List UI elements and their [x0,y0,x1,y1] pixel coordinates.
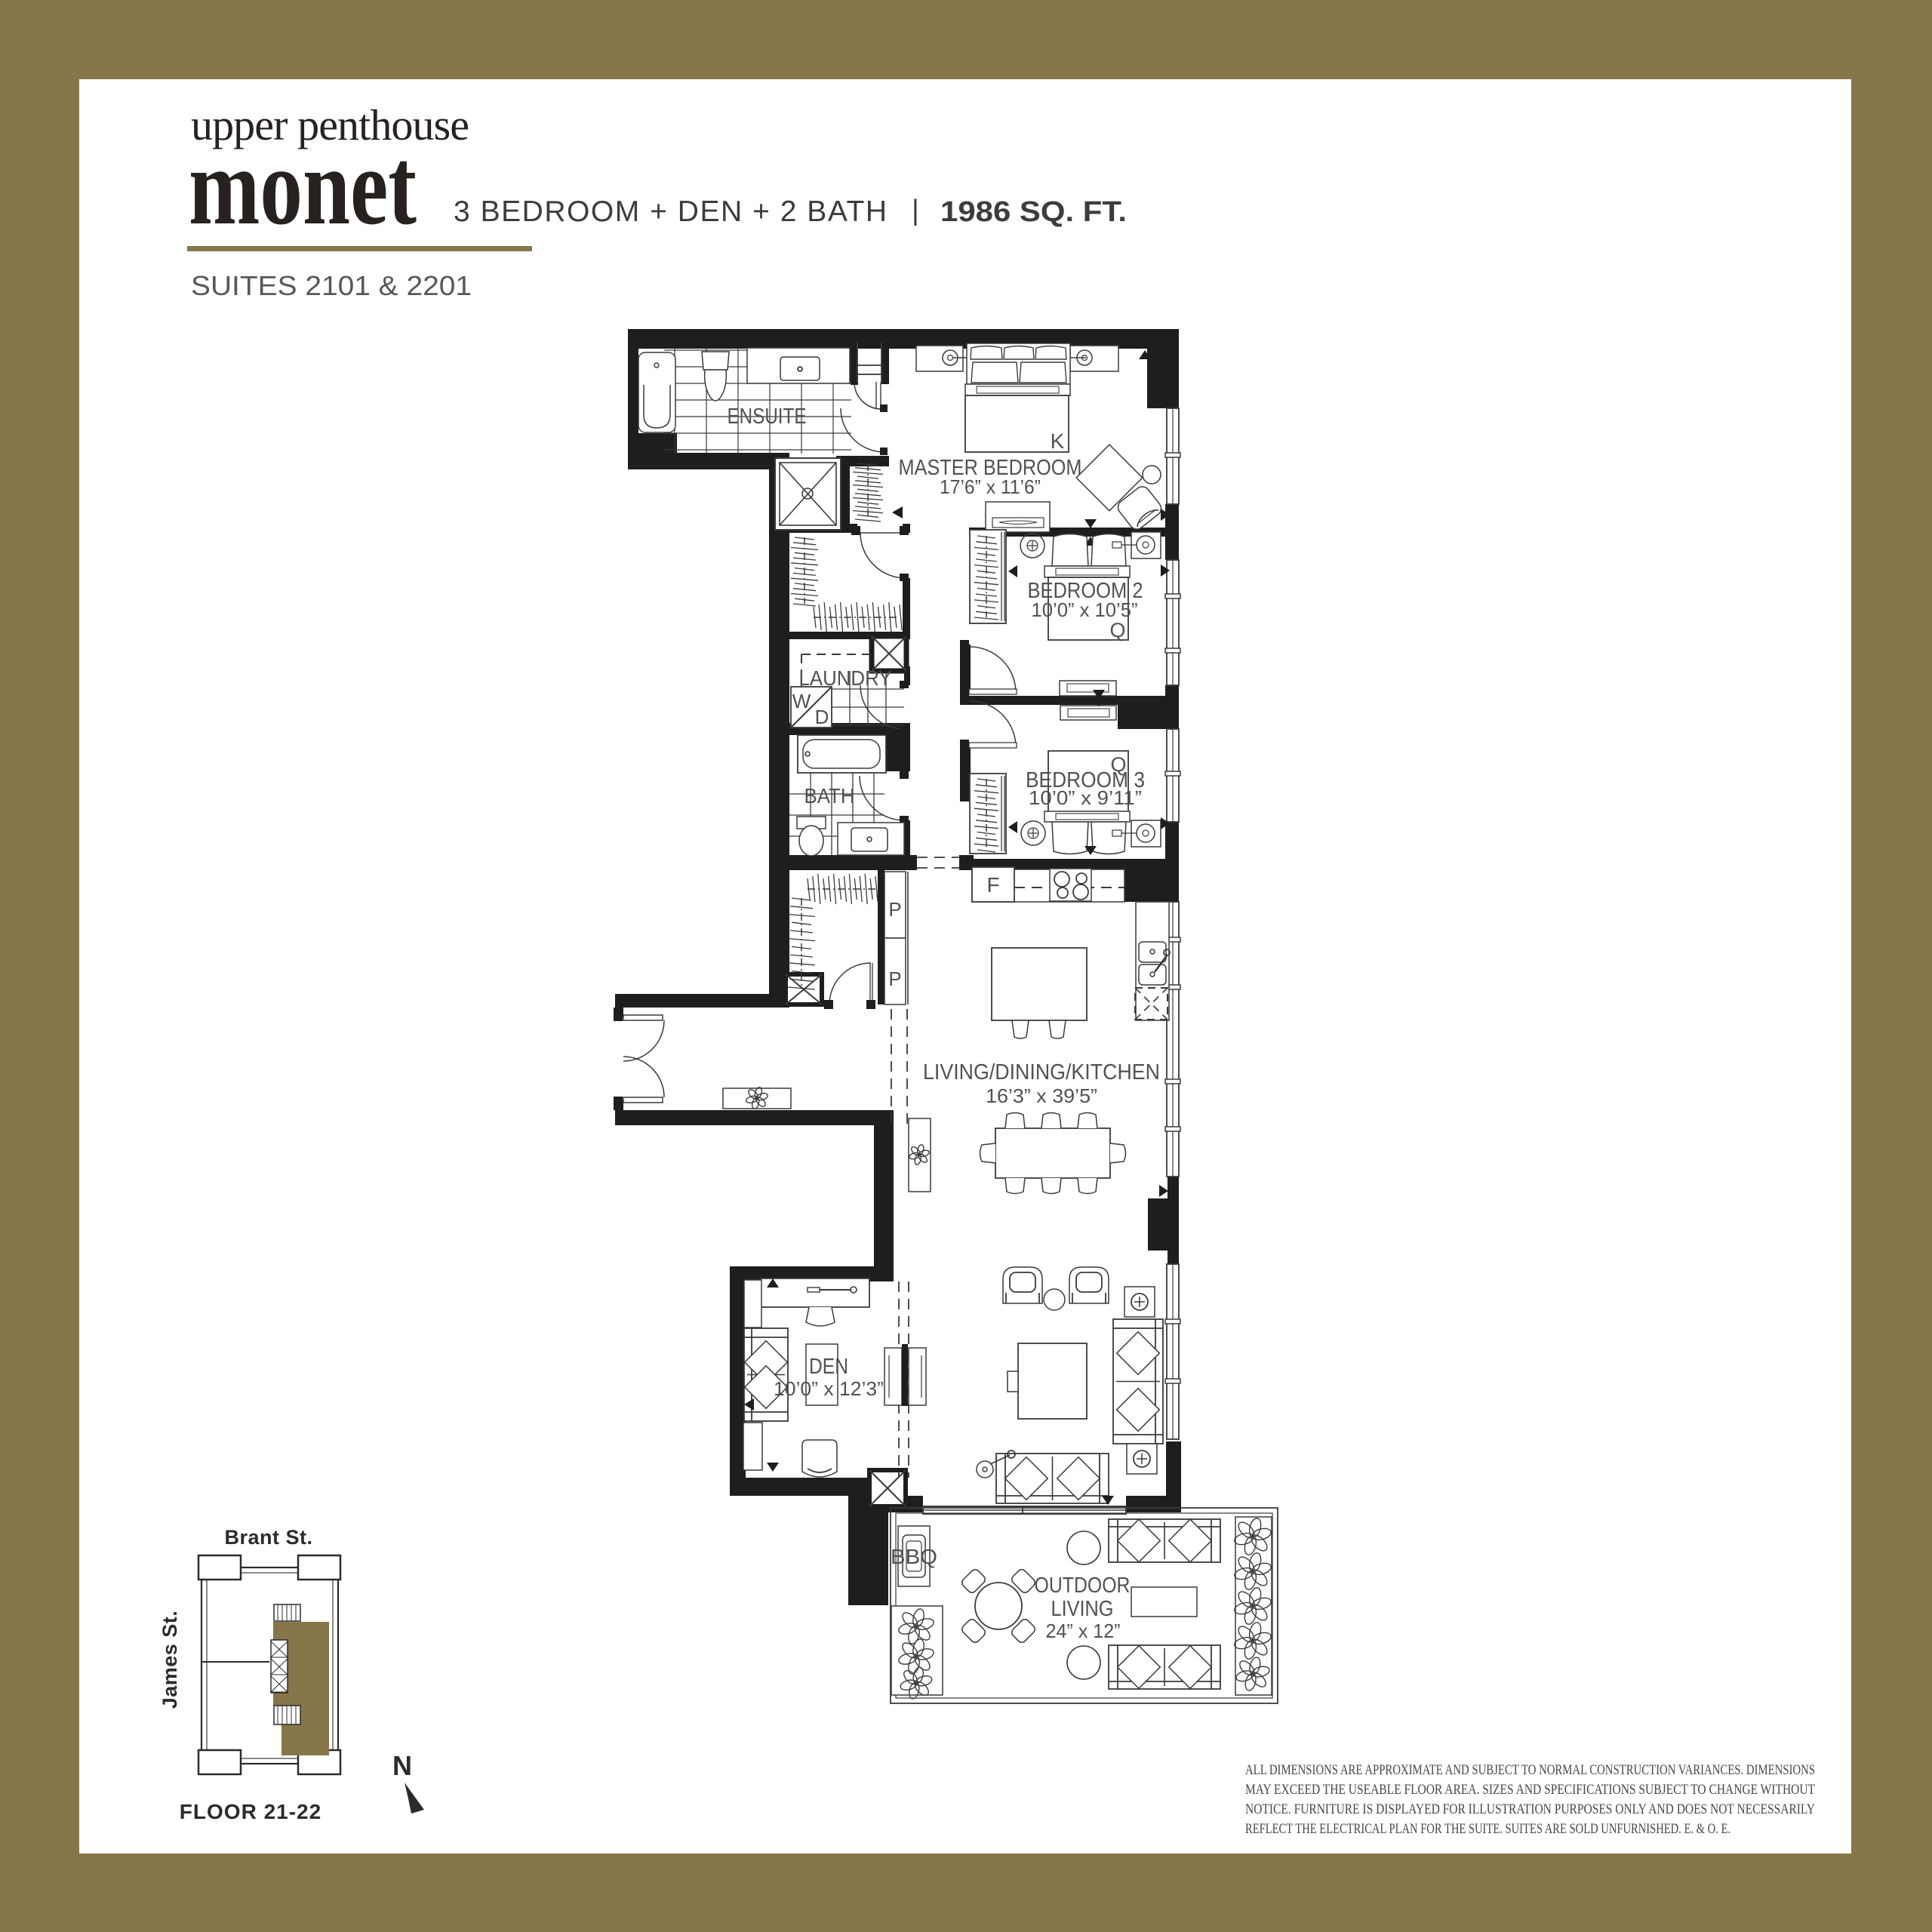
svg-text:OUTDOOR: OUTDOOR [1035,1574,1131,1598]
svg-text:17’6” x 11’6”: 17’6” x 11’6” [940,475,1041,498]
svg-text:NOTICE. FURNITURE IS DISPLAYE: NOTICE. FURNITURE IS DISPLAYED FOR ILLUS… [1245,1802,1815,1817]
svg-text:LAUNDRY: LAUNDRY [799,666,892,690]
svg-text:W: W [792,690,811,712]
svg-text:BATH: BATH [804,784,855,808]
svg-text:N: N [392,1750,412,1781]
svg-text:REFLECT THE ELECTRICAL PLAN FO: REFLECT THE ELECTRICAL PLAN FOR THE SUIT… [1245,1822,1730,1837]
svg-text:ALL DIMENSIONS ARE APPROXIMATE: ALL DIMENSIONS ARE APPROXIMATE AND SUBJE… [1245,1763,1815,1778]
svg-text:ENSUITE: ENSUITE [728,405,807,429]
svg-text:1986 SQ. FT.: 1986 SQ. FT. [940,196,1127,228]
svg-text:D: D [815,706,829,728]
svg-text:K: K [1051,429,1065,453]
svg-text:F: F [986,873,999,897]
svg-text:10’0” x 10’5”: 10’0” x 10’5” [1032,598,1138,621]
svg-text:P: P [888,898,901,921]
svg-text:FLOOR 21-22: FLOOR 21-22 [180,1800,321,1823]
svg-text:10’0” x 12’3”: 10’0” x 12’3” [774,1377,884,1400]
svg-text:LIVING: LIVING [1051,1597,1114,1621]
svg-text:P: P [888,968,901,990]
svg-text:BBQ: BBQ [891,1545,937,1568]
svg-text:3 BEDROOM + DEN + 2 BATH: 3 BEDROOM + DEN + 2 BATH [454,195,887,228]
svg-text:24” x 12”: 24” x 12” [1046,1620,1121,1642]
svg-text:MAY EXCEED THE USEABLE FLOOR A: MAY EXCEED THE USEABLE FLOOR AREA. SIZES… [1245,1783,1815,1798]
svg-text:16’3” x 39’5”: 16’3” x 39’5” [986,1084,1097,1107]
svg-text:Brant St.: Brant St. [224,1526,312,1549]
svg-text:DEN: DEN [809,1355,848,1379]
svg-text:Q: Q [1109,619,1125,641]
svg-text:James St.: James St. [158,1611,181,1709]
svg-text:monet: monet [189,125,417,248]
svg-text:10’0” x 9’11”: 10’0” x 9’11” [1029,786,1142,809]
svg-text:SUITES 2101 & 2201: SUITES 2101 & 2201 [191,270,472,301]
svg-text:LIVING/DINING/KITCHEN: LIVING/DINING/KITCHEN [923,1060,1160,1084]
svg-text:|: | [912,195,919,226]
